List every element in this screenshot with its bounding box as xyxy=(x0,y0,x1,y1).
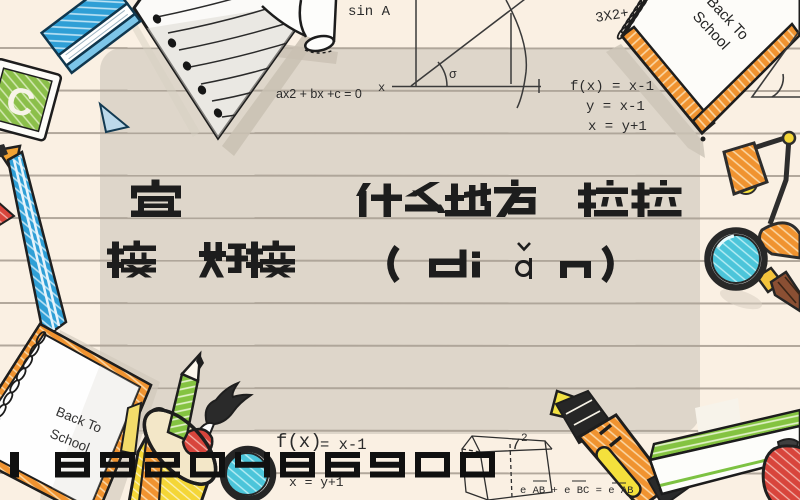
svg-text:σ: σ xyxy=(449,68,457,82)
svg-text:y = x-1: y = x-1 xyxy=(586,99,645,115)
svg-text:= x-1: = x-1 xyxy=(320,436,367,454)
svg-text:x: x xyxy=(378,81,385,95)
svg-text:e AB + e BC = e AB: e AB + e BC = e AB xyxy=(520,485,633,497)
svg-text:f(x) = x-1: f(x) = x-1 xyxy=(570,79,654,95)
svg-text:ax2 + bx +c = 0: ax2 + bx +c = 0 xyxy=(276,87,362,101)
svg-text:2: 2 xyxy=(521,433,528,445)
svg-text:x = y+1: x = y+1 xyxy=(588,119,647,135)
svg-text:sin A: sin A xyxy=(348,4,391,20)
svg-text:f(x): f(x) xyxy=(276,431,322,453)
svg-text:7: 7 xyxy=(511,436,521,454)
